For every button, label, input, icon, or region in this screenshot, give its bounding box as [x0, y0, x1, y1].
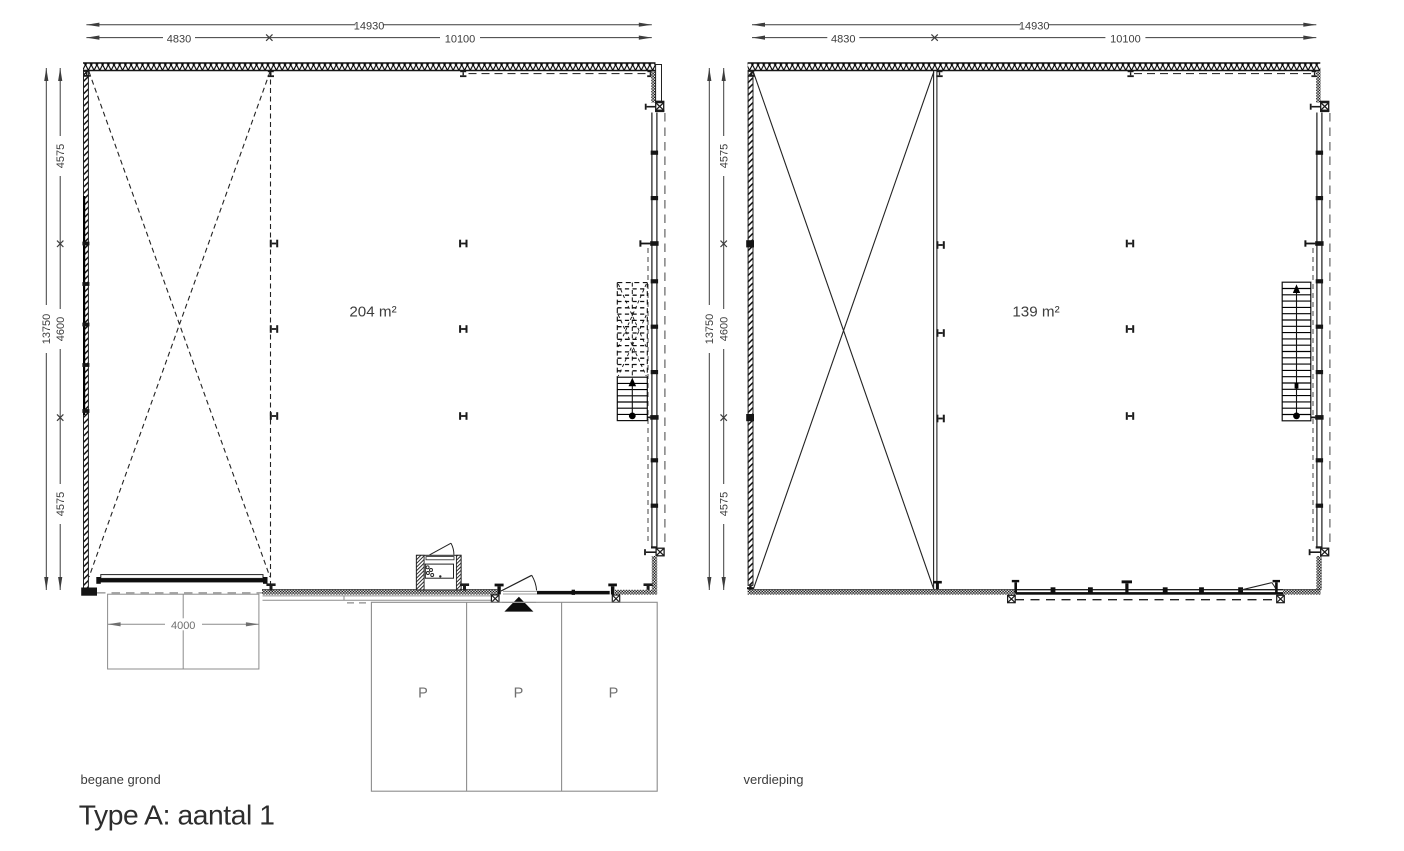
- svg-text:4575: 4575: [719, 144, 731, 168]
- svg-text:10100: 10100: [445, 34, 476, 46]
- svg-text:P: P: [609, 686, 619, 702]
- svg-text:P: P: [418, 686, 428, 702]
- svg-text:4600: 4600: [55, 317, 67, 341]
- svg-text:10100: 10100: [1110, 34, 1141, 46]
- svg-text:13750: 13750: [41, 314, 53, 345]
- svg-text:13750: 13750: [704, 314, 716, 345]
- svg-text:4575: 4575: [55, 144, 67, 168]
- svg-text:P: P: [514, 686, 524, 702]
- svg-text:4600: 4600: [719, 317, 731, 341]
- svg-text:4575: 4575: [55, 492, 67, 516]
- svg-text:4830: 4830: [831, 34, 855, 46]
- svg-text:14930: 14930: [354, 21, 385, 33]
- svg-text:204 m²: 204 m²: [349, 304, 396, 321]
- svg-text:139 m²: 139 m²: [1012, 304, 1059, 321]
- svg-text:begane grond: begane grond: [81, 772, 161, 787]
- svg-text:14930: 14930: [1019, 21, 1050, 33]
- svg-text:Type A: aantal 1: Type A: aantal 1: [79, 799, 275, 831]
- svg-text:4575: 4575: [719, 492, 731, 516]
- svg-text:4000: 4000: [171, 620, 195, 632]
- svg-text:4830: 4830: [167, 34, 191, 46]
- svg-text:verdieping: verdieping: [744, 772, 804, 787]
